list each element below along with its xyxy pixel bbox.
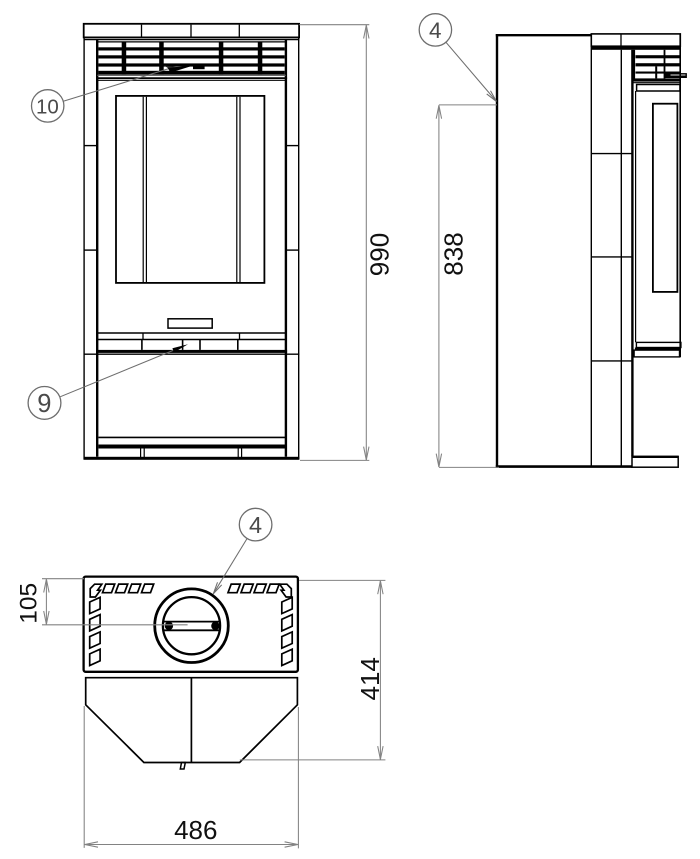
svg-text:9: 9	[37, 390, 51, 418]
svg-text:105: 105	[16, 583, 43, 624]
svg-text:990: 990	[365, 233, 395, 276]
svg-text:10: 10	[36, 95, 59, 118]
svg-text:4: 4	[429, 18, 442, 43]
svg-text:838: 838	[439, 232, 469, 275]
svg-text:486: 486	[174, 815, 217, 845]
svg-text:4: 4	[249, 512, 262, 538]
svg-text:414: 414	[355, 657, 385, 700]
